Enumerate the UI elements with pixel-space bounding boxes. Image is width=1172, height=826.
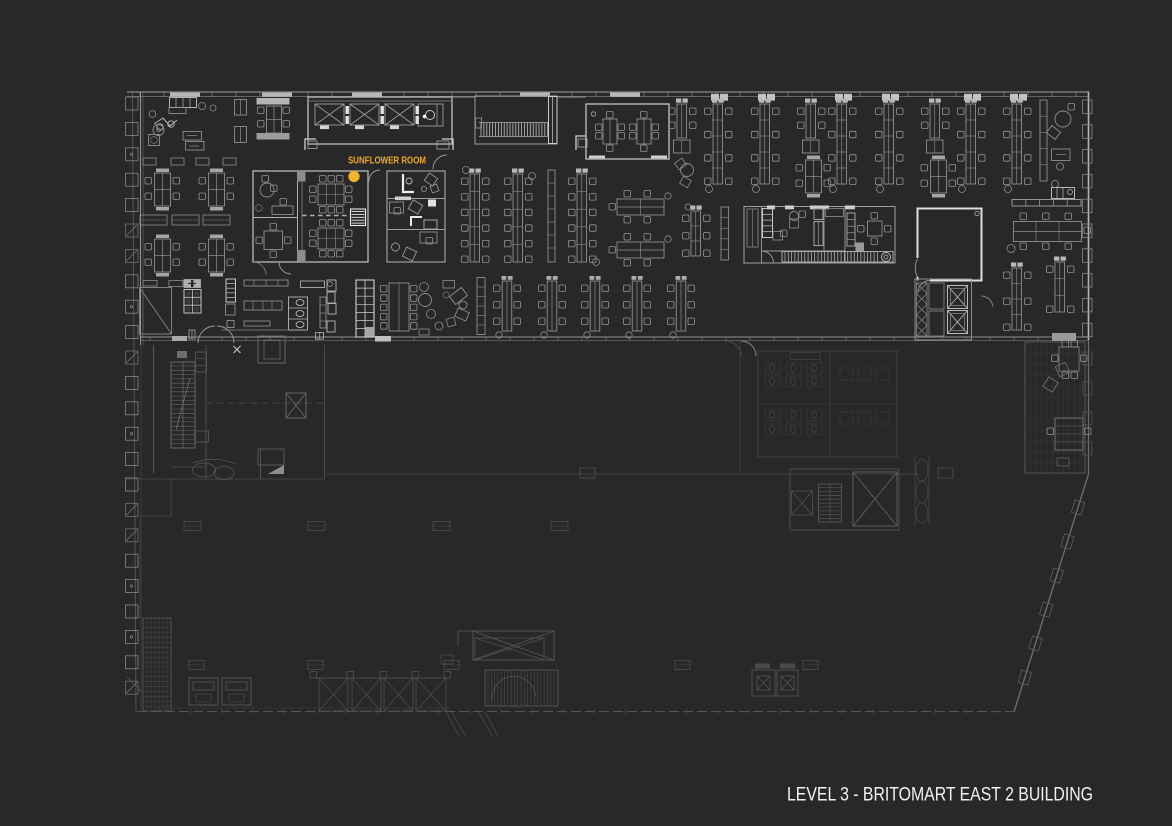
svg-text:SUNFLOWER ROOM: SUNFLOWER ROOM <box>348 156 426 167</box>
svg-text:LEVEL 3 - BRITOMART EAST 2 BUI: LEVEL 3 - BRITOMART EAST 2 BUILDING <box>787 784 1093 806</box>
